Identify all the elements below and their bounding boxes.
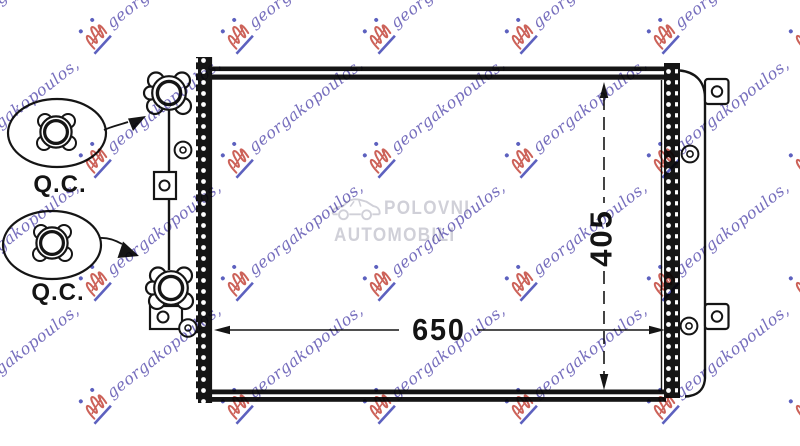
polovni-automobili-watermark: POLOVNI AUTOMOBILI xyxy=(330,195,480,245)
radiator-diagram-canvas: 650 405 Q.C. Q.C. POLOVNI AUTOMOBILI geo… xyxy=(0,0,800,446)
grommet-left-bottom xyxy=(179,319,197,337)
right-tank xyxy=(664,63,729,398)
outlet-port xyxy=(146,268,193,310)
qc-arrow-top xyxy=(104,116,146,131)
center-watermark-line1: POLOVNI xyxy=(384,199,470,218)
height-dimension-label: 405 xyxy=(586,209,617,267)
qc-detail-oval-top xyxy=(8,99,106,167)
qc-label-bottom: Q.C. xyxy=(31,281,84,305)
left-tank-fittings xyxy=(144,73,197,337)
qc-label-top: Q.C. xyxy=(33,173,86,197)
width-dimension-label: 650 xyxy=(402,314,476,345)
inlet-port xyxy=(144,73,191,115)
bolt-right-top xyxy=(682,146,699,163)
center-watermark-line2: AUTOMOBILI xyxy=(334,226,465,245)
left-tank-serrated-edge xyxy=(196,57,211,403)
qc-arrow-bottom xyxy=(100,238,139,258)
bolt-right-bottom xyxy=(681,318,698,335)
qc-detail-oval-bottom xyxy=(3,211,101,279)
car-icon xyxy=(330,195,382,222)
bolt-left-top xyxy=(175,142,192,159)
